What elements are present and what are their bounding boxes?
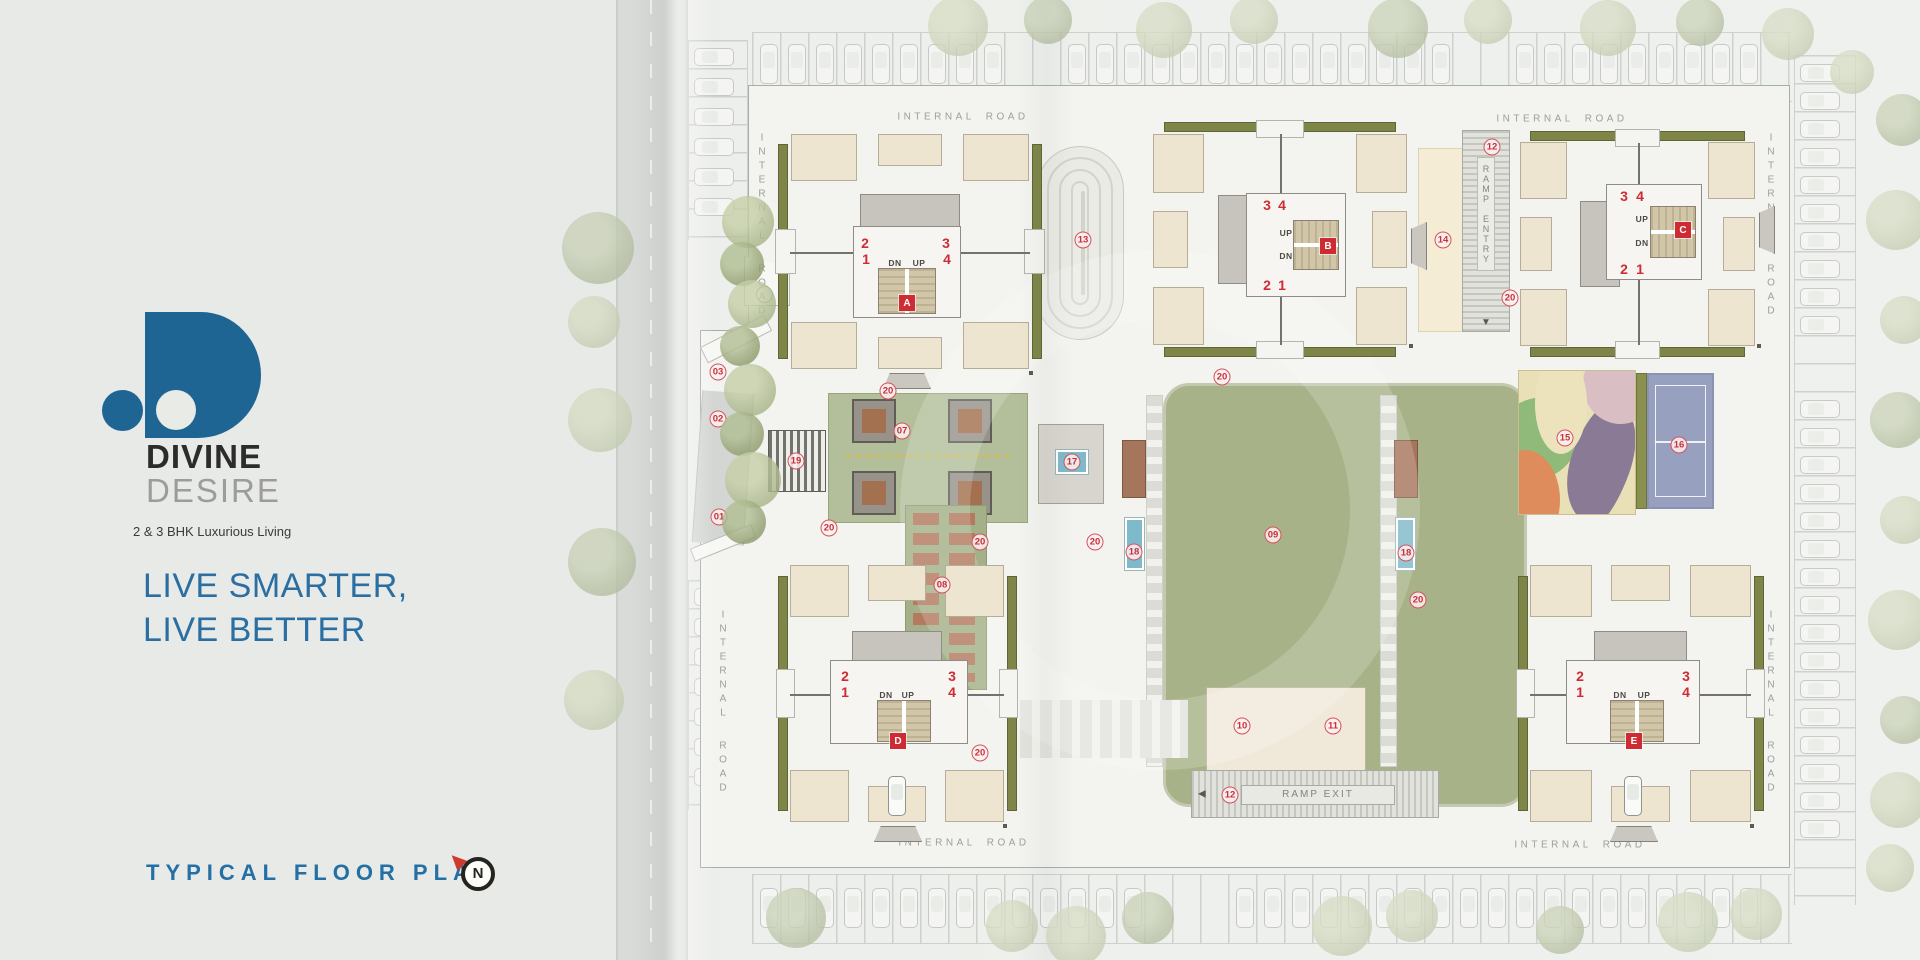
marker-20: 20 — [1502, 290, 1519, 307]
marker-03: 03 — [710, 364, 727, 381]
tree — [722, 196, 774, 248]
internal-road-label: INTERNAL ROAD — [897, 112, 1028, 123]
stair-dn-label: DN — [888, 258, 901, 268]
building-slab — [1750, 824, 1754, 828]
unit-divider-wall — [1638, 143, 1640, 184]
marker-07: 07 — [894, 423, 911, 440]
stair-up-label: UP — [1638, 690, 1651, 700]
marker-17: 17 — [1064, 454, 1081, 471]
apartment-room — [1520, 217, 1553, 271]
apartment-room — [945, 770, 1005, 822]
apartment-room — [1356, 287, 1407, 346]
apartment-room — [1690, 770, 1751, 822]
unit-divider-wall — [961, 252, 1030, 254]
site-plan: RAMP ENTRY ▼ ◀ RAMP EXIT — [0, 0, 1920, 960]
unit-number-4: 4 — [943, 252, 951, 266]
unit-number-1: 1 — [1576, 685, 1584, 699]
apartment-room — [1530, 565, 1591, 617]
apartment-room — [1356, 134, 1407, 193]
marker-18: 18 — [1398, 545, 1415, 562]
unit-divider-wall — [1280, 297, 1282, 345]
apartment-room — [1611, 565, 1670, 600]
apartment-room — [790, 770, 850, 822]
apartment-room — [1690, 565, 1751, 617]
apartment-room — [1372, 211, 1407, 267]
unit-number-2: 2 — [841, 669, 849, 683]
marker-20: 20 — [1087, 534, 1104, 551]
marker-20: 20 — [1214, 369, 1231, 386]
stair-up-label: UP — [902, 690, 915, 700]
internal-road-label: INTERNAL ROAD — [1496, 114, 1627, 125]
tree — [720, 326, 760, 366]
tree — [722, 500, 766, 544]
unit-divider-wall — [790, 252, 853, 254]
marker-20: 20 — [972, 745, 989, 762]
marker-13: 13 — [1075, 232, 1092, 249]
marker-12: 12 — [1484, 139, 1501, 156]
tree — [728, 280, 776, 328]
tree — [720, 412, 764, 456]
unit-number-3: 3 — [1682, 669, 1690, 683]
apartment-room — [1520, 142, 1568, 199]
unit-number-4: 4 — [948, 685, 956, 699]
unit-divider-wall — [1700, 694, 1751, 696]
stair-up-label: UP — [1280, 228, 1293, 238]
apartment-room — [1723, 217, 1756, 271]
marker-16: 16 — [1671, 437, 1688, 454]
tree — [724, 364, 776, 416]
unit-number-4: 4 — [1278, 198, 1286, 212]
unit-number-2: 2 — [1576, 669, 1584, 683]
apartment-room — [945, 565, 1005, 617]
building-slab — [1029, 371, 1033, 375]
marker-20: 20 — [880, 383, 897, 400]
unit-divider-wall — [1638, 280, 1640, 345]
entrance-canopy — [1610, 826, 1658, 842]
building-slab — [1757, 344, 1761, 348]
apartment-room — [1708, 289, 1756, 346]
tree — [725, 452, 781, 508]
marker-20: 20 — [821, 520, 838, 537]
unit-divider-wall — [968, 694, 1004, 696]
car-icon — [888, 776, 906, 816]
marker-19: 19 — [788, 453, 805, 470]
marker-14: 14 — [1435, 232, 1452, 249]
apartment-room — [791, 322, 857, 370]
unit-number-3: 3 — [948, 669, 956, 683]
unit-number-1: 1 — [841, 685, 849, 699]
apartment-room — [1530, 770, 1591, 822]
unit-number-1: 1 — [1278, 278, 1286, 292]
marker-20: 20 — [1410, 592, 1427, 609]
stair-dn-label: DN — [1279, 251, 1292, 261]
apartment-room — [1708, 142, 1756, 199]
building-badge-C: C — [1675, 222, 1691, 238]
stair-up-label: UP — [913, 258, 926, 268]
apartment-room — [1153, 211, 1188, 267]
stair-dn-label: DN — [1635, 238, 1648, 248]
unit-number-1: 1 — [862, 252, 870, 266]
apartment-room — [790, 565, 850, 617]
unit-number-4: 4 — [1682, 685, 1690, 699]
marker-08: 08 — [934, 577, 951, 594]
unit-divider-wall — [790, 694, 830, 696]
unit-number-1: 1 — [1636, 262, 1644, 276]
apartment-room — [963, 134, 1029, 182]
stair-up-label: UP — [1636, 214, 1649, 224]
stair-dn-label: DN — [1613, 690, 1626, 700]
building-badge-B: B — [1320, 238, 1336, 254]
unit-number-4: 4 — [1636, 189, 1644, 203]
apartment-room — [878, 134, 941, 167]
marker-10: 10 — [1234, 718, 1251, 735]
apartment-room — [868, 565, 925, 600]
unit-divider-wall — [1530, 694, 1566, 696]
marker-09: 09 — [1265, 527, 1282, 544]
unit-number-3: 3 — [1620, 189, 1628, 203]
marker-11: 11 — [1325, 718, 1342, 735]
marker-20: 20 — [972, 534, 989, 551]
building-slab — [1409, 344, 1413, 348]
unit-number-3: 3 — [1263, 198, 1271, 212]
unit-number-3: 3 — [942, 236, 950, 250]
unit-number-2: 2 — [1263, 278, 1271, 292]
unit-number-2: 2 — [861, 236, 869, 250]
marker-12: 12 — [1222, 787, 1239, 804]
building-badge-E: E — [1626, 733, 1642, 749]
building-badge-D: D — [890, 733, 906, 749]
car-icon — [1624, 776, 1642, 816]
apartment-room — [963, 322, 1029, 370]
unit-number-2: 2 — [1620, 262, 1628, 276]
entrance-canopy — [1759, 206, 1775, 254]
internal-road-label: INTERNAL ROAD — [1766, 610, 1777, 797]
apartment-room — [1520, 289, 1568, 346]
apartment-room — [1153, 134, 1204, 193]
apartment-room — [1153, 287, 1204, 346]
tree — [720, 242, 764, 286]
entrance-canopy — [1411, 222, 1427, 270]
unit-divider-wall — [1280, 134, 1282, 193]
apartment-room — [878, 337, 941, 370]
entrance-canopy — [874, 826, 922, 842]
marker-18: 18 — [1126, 544, 1143, 561]
building-slab — [1003, 824, 1007, 828]
brochure-page: DIVINE DESIRE 2 & 3 BHK Luxurious Living… — [0, 0, 1920, 960]
stair-dn-label: DN — [879, 690, 892, 700]
internal-road-label: INTERNAL ROAD — [718, 610, 729, 797]
building-badge-A: A — [899, 295, 915, 311]
marker-15: 15 — [1557, 430, 1574, 447]
apartment-room — [791, 134, 857, 182]
